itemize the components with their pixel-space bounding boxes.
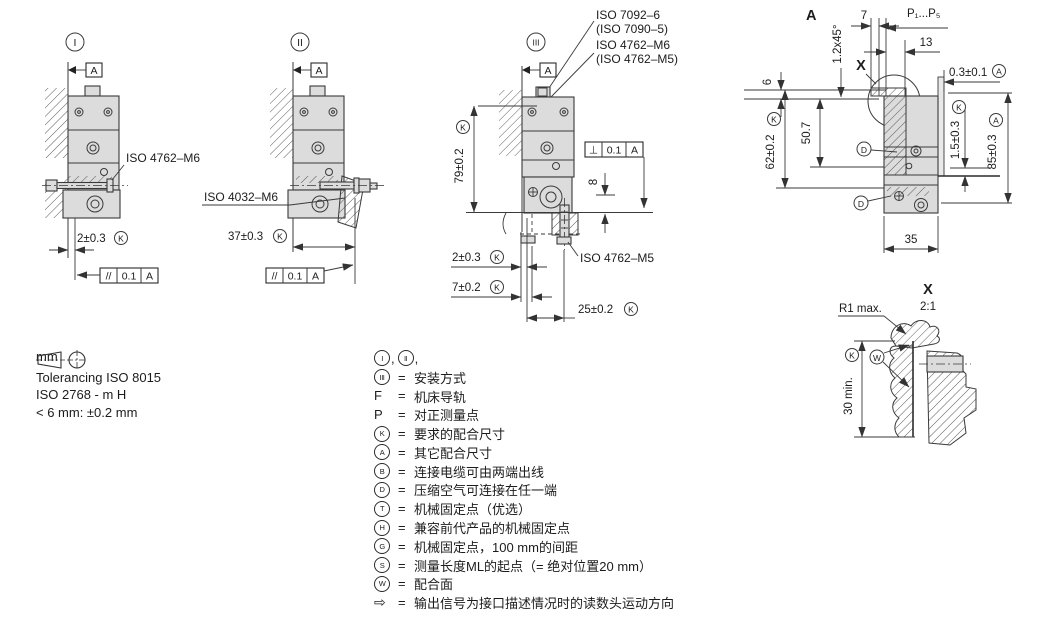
- r1-max-label: R1 max.: [839, 303, 882, 315]
- parallelism-frame: // 0.1 A: [77, 268, 158, 283]
- symbol-h: H: [374, 520, 390, 536]
- k-mark: K: [956, 102, 962, 112]
- k-mark: K: [118, 233, 124, 243]
- clamp-hatch: [66, 176, 112, 183]
- a-mark: A: [993, 115, 999, 125]
- dim-37-width: 37±0.3: [228, 231, 263, 243]
- symbol-a: A: [374, 444, 390, 460]
- w-surface-letter: W: [873, 353, 881, 363]
- legend-row: B=连接电缆可由两端出线: [374, 462, 674, 481]
- dim-85: 85±0.3: [987, 134, 999, 169]
- datum-letter: A: [90, 65, 97, 77]
- k-mark: K: [771, 114, 777, 124]
- section-hatch: [884, 96, 906, 175]
- wall-hatch: [270, 88, 293, 158]
- dim-7: 7: [861, 10, 867, 22]
- dim-2-gap: 2±0.3: [452, 252, 481, 264]
- fcf-tolerance: 0.1: [122, 271, 137, 283]
- clamp-hatch: [887, 187, 929, 196]
- detail-x-reference: X: [856, 58, 866, 74]
- table-break-line: [503, 213, 506, 234]
- dim-30-min: 30 min.: [843, 377, 855, 415]
- dim-13: 13: [920, 37, 933, 49]
- dim-6: 6: [762, 79, 774, 85]
- view2-label: II: [297, 37, 303, 49]
- dim-8-depth: 8: [588, 179, 600, 185]
- legend-row: S=测量长度ML的起点（= 绝对位置20 mm）: [374, 556, 674, 575]
- detail-x-label: X: [923, 282, 933, 298]
- cable-connector: [310, 86, 325, 96]
- legend-row: III=安装方式: [374, 368, 674, 387]
- view3-symbol: III: [374, 369, 390, 385]
- dim-7-offset: 7±0.2: [452, 282, 481, 294]
- k-mark: K: [494, 252, 500, 262]
- view1-symbol: I: [374, 350, 390, 366]
- view-2-drawing: II A ISO 4032–M6 37±0.3 K: [202, 33, 384, 284]
- view2-symbol: II: [398, 350, 414, 366]
- a-mark: A: [996, 66, 1002, 76]
- iso-4762-m6-label: ISO 4762–M6: [126, 151, 200, 165]
- datum-letter: A: [315, 65, 322, 77]
- perpendicularity-frame: ⊥ 0.1 A: [585, 142, 644, 208]
- symbol-g: G: [374, 538, 390, 554]
- legend-row: K=要求的配合尺寸: [374, 424, 674, 443]
- view-a-drawing: A 7 P₁...P₅ 13 1.2x45° X 6 50.7 62±0.2 K: [744, 8, 1012, 253]
- wall-hatch: [499, 90, 522, 156]
- detail-x-drawing: X 2:1 R1 max. W 30 min. K: [838, 282, 976, 445]
- fcf-symbol: //: [272, 271, 278, 283]
- fcf-symbol: //: [106, 271, 112, 283]
- datum-flag-triangle-icon: [68, 66, 76, 74]
- legend: I, II, III=安装方式 F=机床导轨 P=对正测量点 K=要求的配合尺寸…: [374, 349, 674, 612]
- symbol-k: K: [374, 426, 390, 442]
- fcf-datum: A: [146, 271, 153, 283]
- symbol-w: W: [374, 576, 390, 592]
- view3-label: III: [532, 38, 539, 48]
- dim-50-7: 50.7: [801, 122, 813, 144]
- port-d-letter: D: [861, 145, 867, 155]
- scale-lip-hatch: [891, 320, 939, 348]
- symbol-t: T: [374, 501, 390, 517]
- datum-letter: A: [544, 65, 551, 77]
- symbol-f: F: [374, 388, 382, 403]
- iso-4032-m6-label: ISO 4032–M6: [204, 190, 278, 204]
- legend-row: P=对正测量点: [374, 405, 674, 424]
- iso2768-note: ISO 2768 - m H: [36, 386, 161, 404]
- dim-25-spacing: 25±0.2: [578, 304, 613, 316]
- iso-4762-m5-bottom-label: ISO 4762–M5: [580, 251, 654, 265]
- k-mark: K: [628, 304, 634, 314]
- dim-62: 62±0.2: [765, 134, 777, 169]
- scale-section-hatch: [890, 346, 913, 437]
- legend-row: A=其它配合尺寸: [374, 443, 674, 462]
- fcf-tolerance: 0.1: [607, 145, 622, 157]
- dim-2-gap: 2±0.3: [77, 233, 106, 245]
- iso-7090-5-label: (ISO 7090–5): [596, 22, 668, 36]
- view-1-drawing: I A ISO 4762–M6 2±0.3 K //: [42, 33, 200, 283]
- symbol-b: B: [374, 463, 390, 479]
- symbol-d: D: [374, 482, 390, 498]
- under6-note: < 6 mm: ±0.2 mm: [36, 404, 161, 422]
- view1-label: I: [74, 37, 77, 49]
- datum-flag-triangle-icon: [293, 66, 301, 74]
- tolerance-notes: mm Tolerancing ISO 8015 ISO 2768 - m H <…: [36, 348, 161, 421]
- foot: [521, 236, 535, 243]
- viewA-label: A: [806, 8, 817, 24]
- bolt-end: [370, 183, 377, 189]
- dim-79-height: 79±0.2: [454, 148, 466, 183]
- view-3-drawing: III ISO 7092–6 (ISO 7090–5) ISO 4762–M6 …: [451, 8, 678, 322]
- legend-row: F=机床导轨: [374, 387, 674, 406]
- legend-row: T=机械固定点（优选）: [374, 499, 674, 518]
- legend-row: G=机械固定点，100 mm的间距: [374, 537, 674, 556]
- iso-4762-m5-label: (ISO 4762–M5): [596, 52, 678, 66]
- k-mark: K: [849, 350, 855, 360]
- cable-connector: [85, 86, 100, 96]
- datum-flag-triangle-icon: [522, 66, 530, 74]
- k-mark: K: [460, 122, 466, 132]
- scale-tongue-hatch: [871, 88, 906, 96]
- guideway-rail: [938, 77, 944, 176]
- k-mark: K: [277, 231, 283, 241]
- legend-row: W=配合面: [374, 575, 674, 594]
- detail-x-scale: 2:1: [920, 301, 936, 313]
- parallelism-frame: // 0.1 A: [266, 265, 353, 283]
- fcf-tolerance: 0.1: [288, 271, 303, 283]
- legend-row: ⇨=输出信号为接口描述情况时的读数头运动方向: [374, 593, 674, 612]
- fcf-datum: A: [631, 145, 638, 157]
- symbol-p: P: [374, 407, 383, 422]
- symbol-s: S: [374, 557, 390, 573]
- wall-hatch: [45, 88, 68, 158]
- fcf-symbol: ⊥: [589, 145, 598, 157]
- port-d-letter: D: [858, 199, 864, 209]
- dim-measuring-points: P₁...P₅: [907, 8, 941, 20]
- iso-4762-m6-label: ISO 4762–M6: [596, 38, 670, 52]
- legend-intro-row: I, II,: [374, 349, 674, 368]
- fcf-datum: A: [312, 271, 319, 283]
- direction-arrow-icon: ⇨: [374, 594, 386, 611]
- dim-chamfer: 1.2x45°: [832, 24, 844, 63]
- iso-7092-6-label: ISO 7092–6: [596, 8, 660, 22]
- legend-row: D=压缩空气可连接在任一端: [374, 481, 674, 500]
- dim-35: 35: [905, 234, 918, 246]
- dim-0-3-gap: 0.3±0.1: [949, 67, 987, 79]
- dim-1-5: 1.5±0.3: [950, 121, 962, 159]
- k-mark: K: [494, 282, 500, 292]
- legend-row: H=兼容前代产品的机械固定点: [374, 518, 674, 537]
- mounting-drawing-page: I A ISO 4762–M6 2±0.3 K //: [0, 0, 1040, 644]
